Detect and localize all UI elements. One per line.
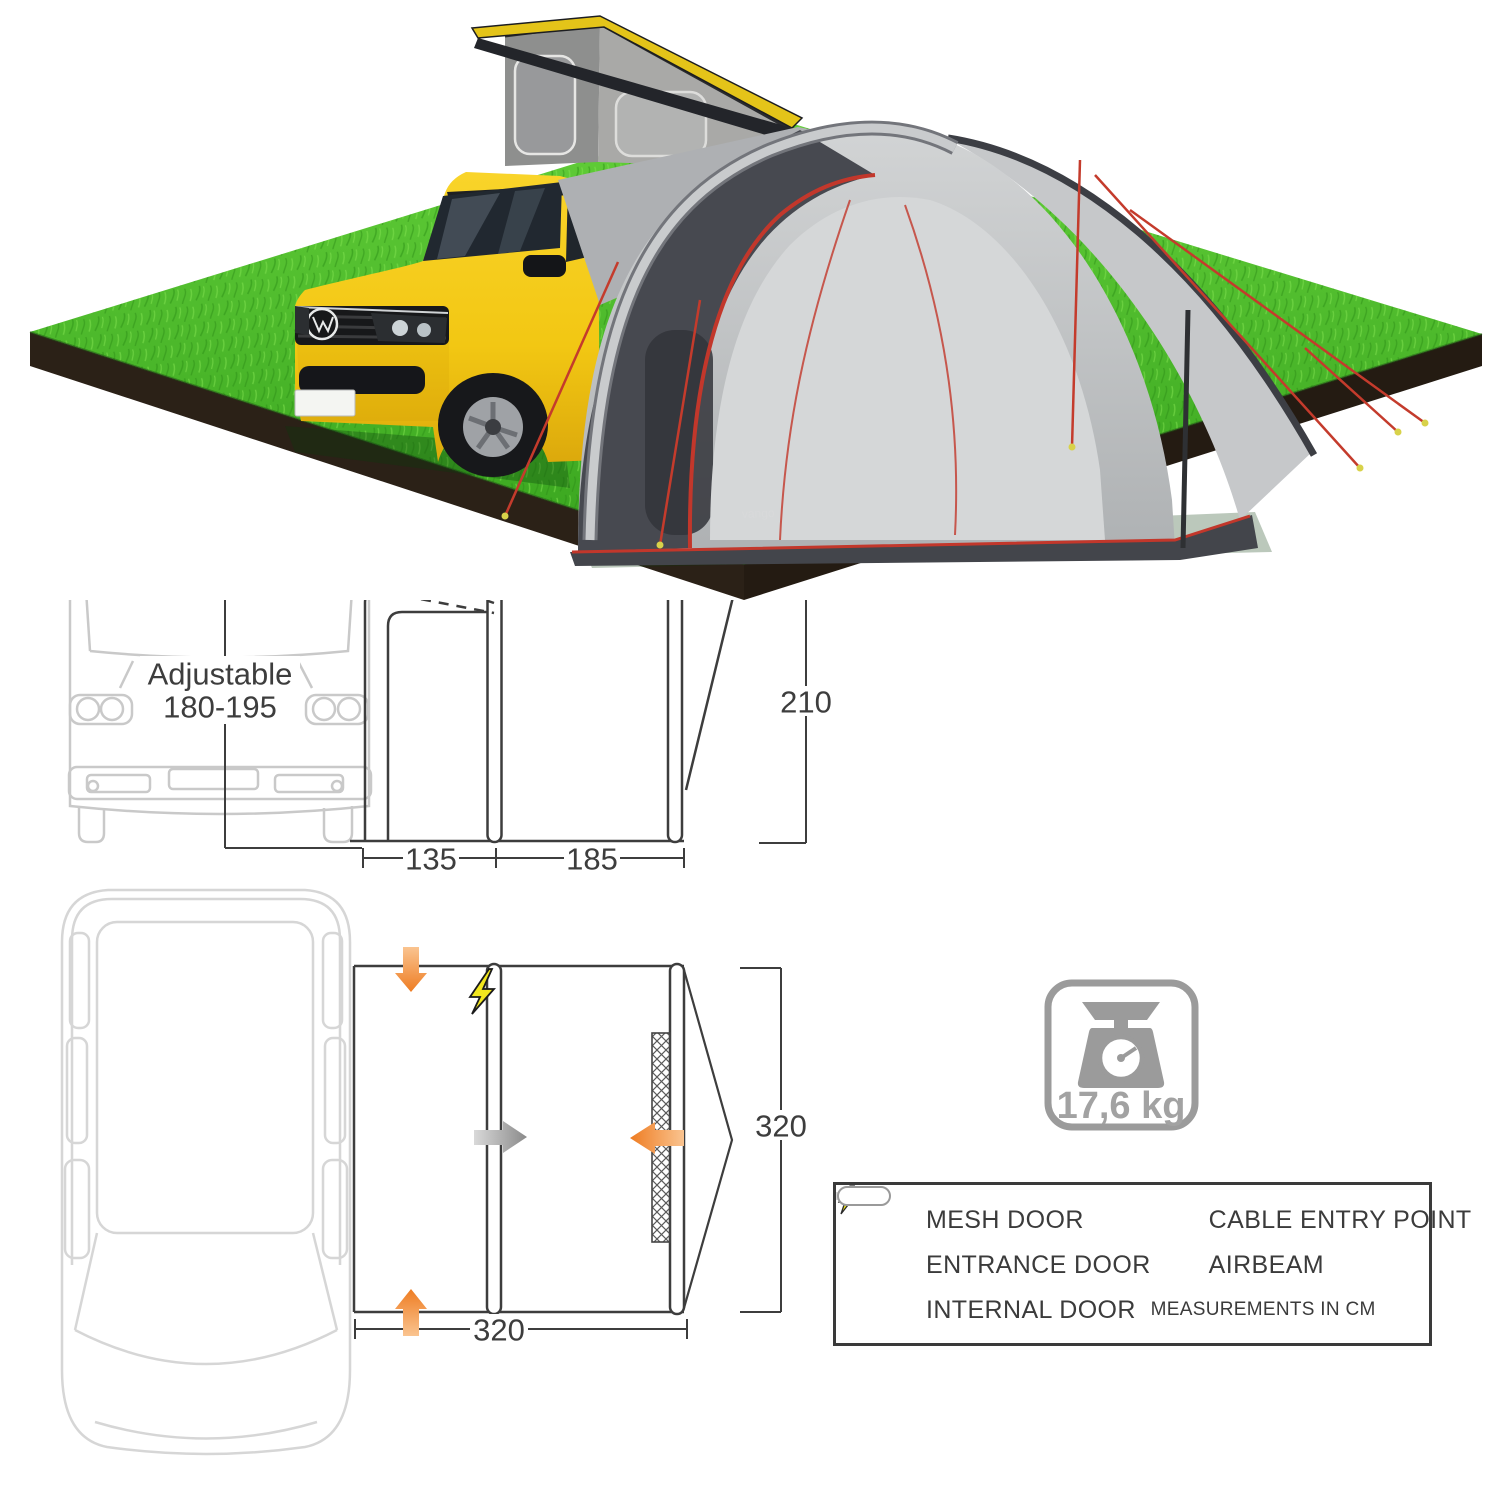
awning-side-profile [350, 600, 733, 842]
measurements-note: MEASUREMENTS IN CM [1151, 1299, 1376, 1321]
dimension-135: 135 [405, 842, 457, 877]
van-top-outline [62, 890, 350, 1454]
legend-label-airbeam: AIRBEAM [1209, 1251, 1324, 1280]
legend-label-entrance-door: ENTRANCE DOOR [926, 1251, 1151, 1280]
adjustable-label-line2: 180-195 [163, 690, 277, 725]
weight-value: 17,6 kg [1057, 1085, 1186, 1127]
dimension-320-width-label: 320 [473, 1313, 525, 1348]
legend-box: MESH DOOR ENTRANCE DOOR [833, 1182, 1432, 1346]
brand-label: vango [742, 506, 775, 521]
dimension-185: 185 [566, 842, 618, 877]
legend-row-measurements-note: MEASUREMENTS IN CM [1151, 1295, 1472, 1325]
awning: vango [558, 126, 1314, 566]
dimension-210 [759, 600, 806, 843]
legend-row-internal-door: INTERNAL DOOR [868, 1295, 1151, 1325]
dimension-210-label: 210 [780, 685, 832, 720]
front-wheel [438, 373, 548, 477]
dimension-320-depth-label: 320 [755, 1109, 807, 1144]
legend-row-airbeam: AIRBEAM [1151, 1250, 1472, 1280]
product-photo: vango [0, 0, 1500, 600]
technical-diagrams: Adjustable 180-195 135 185 210 [0, 600, 1500, 1500]
legend-row-cable-entry: CABLE ENTRY POINT [1151, 1205, 1472, 1235]
legend-row-entrance-door: ENTRANCE DOOR [868, 1250, 1151, 1280]
airbeam-profile-1 [488, 600, 502, 842]
porch-triangle [684, 970, 732, 1308]
page: vango [0, 0, 1500, 1500]
legend-label-mesh-door: MESH DOOR [926, 1206, 1084, 1235]
airbeam-profile-2 [668, 600, 682, 842]
adjustable-label-line1: Adjustable [148, 657, 293, 692]
legend-row-mesh-door: MESH DOOR [868, 1205, 1151, 1235]
legend-label-internal-door: INTERNAL DOOR [926, 1296, 1136, 1325]
weight-badge: 17,6 kg [1048, 983, 1195, 1127]
entrance-door-arrow-top [395, 947, 427, 992]
license-plate [295, 390, 355, 416]
wing-mirror [523, 255, 566, 277]
legend-label-cable-entry: CABLE ENTRY POINT [1209, 1206, 1472, 1235]
